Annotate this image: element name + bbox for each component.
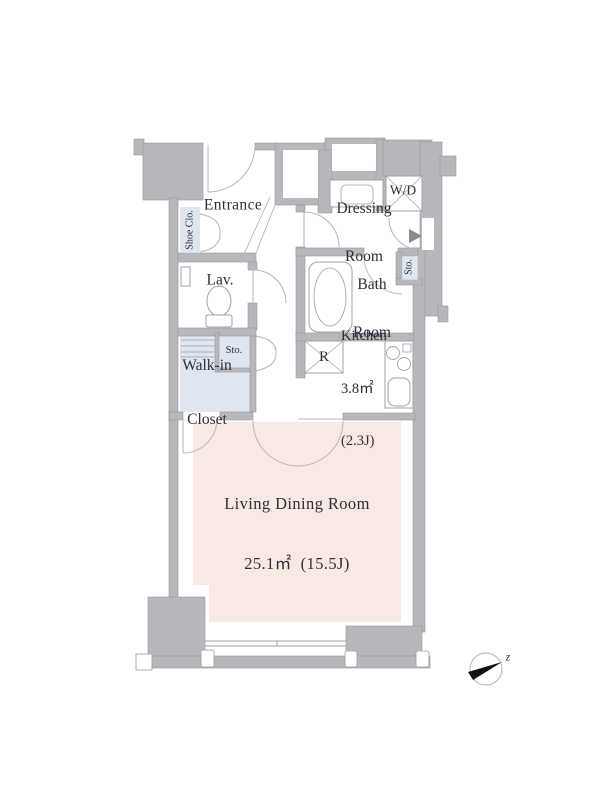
floor-plan-drawing bbox=[0, 0, 600, 800]
stove-burner bbox=[398, 358, 411, 371]
dressing-room-door bbox=[304, 212, 339, 247]
lavatory-door bbox=[253, 270, 286, 303]
toilet-control bbox=[181, 267, 190, 286]
window-wall bbox=[205, 641, 346, 646]
window-cap bbox=[201, 650, 214, 667]
shoe-closet-doors bbox=[200, 214, 220, 252]
balcony-corner-box bbox=[136, 654, 152, 670]
window-cap bbox=[416, 651, 429, 667]
north-arrow-icon bbox=[468, 662, 502, 680]
walk-in-closet-label: Walk-in Closet bbox=[182, 321, 232, 465]
right-wall-opening bbox=[422, 218, 434, 250]
washer-dryer-label: W/D bbox=[390, 184, 416, 199]
shaft-box-left bbox=[283, 150, 318, 198]
shoe-closet-label: Shoe Clo. bbox=[185, 210, 196, 249]
window-cap bbox=[345, 651, 357, 667]
floor-plan: Entrance Shoe Clo. W/D Dressing Room Sto… bbox=[0, 0, 600, 800]
lavatory-label: Lav. bbox=[207, 271, 234, 288]
kitchen-sink bbox=[388, 378, 410, 406]
refrigerator-label: R bbox=[319, 350, 329, 366]
hall-storage-doors bbox=[256, 336, 276, 371]
entrance-door bbox=[208, 145, 255, 192]
shaft-box-right bbox=[332, 144, 376, 171]
storage-right-label: Sto. bbox=[404, 259, 415, 275]
entrance-label: Entrance bbox=[204, 196, 262, 213]
toilet-bowl bbox=[207, 286, 231, 316]
compass-label: z bbox=[506, 652, 510, 665]
stove-panel bbox=[403, 344, 411, 352]
compass bbox=[468, 653, 502, 685]
living-dining-label: Living Dining Room 25.1㎡ (15.5J) bbox=[224, 454, 370, 614]
